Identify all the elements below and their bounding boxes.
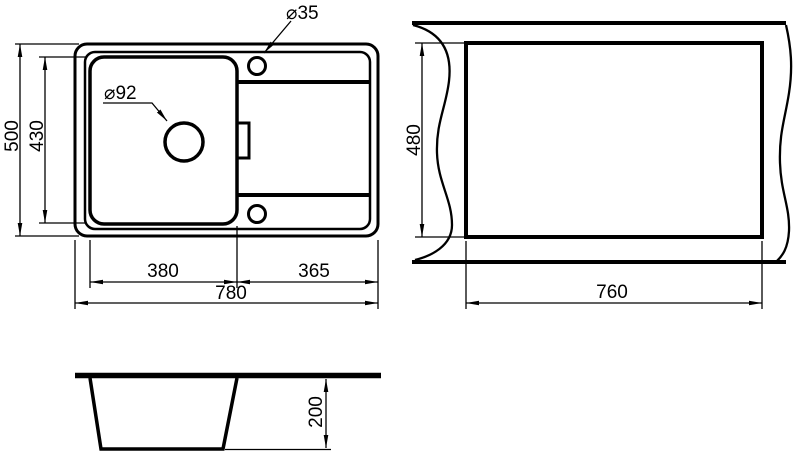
bowl-height-value: 430 — [27, 120, 48, 152]
plan-view: ⌀92 ⌀35 500 430 380 — [2, 3, 378, 309]
sink-outer-outline — [75, 44, 378, 236]
tap-hole-diameter-label: ⌀35 — [286, 3, 319, 24]
bowl-depth-value: 200 — [306, 396, 327, 428]
cutout-view: 480 760 — [404, 23, 791, 309]
dimension-cutout-width: 760 — [466, 241, 762, 309]
drain-leader-line — [103, 103, 167, 121]
overall-height-value: 500 — [2, 120, 23, 152]
drainer-width-value: 365 — [298, 261, 330, 282]
overall-width-value: 780 — [215, 283, 247, 304]
drain-diameter-callout: ⌀92 — [103, 83, 167, 121]
dimension-drainer-width: 365 — [237, 261, 378, 282]
dimension-bowl-height: 430 — [27, 57, 87, 223]
bowl-width-value: 380 — [147, 261, 179, 282]
tap-hole-leader-line — [264, 21, 291, 53]
dimension-overall-width: 780 — [75, 240, 378, 309]
cutout-width-value: 760 — [596, 282, 628, 303]
dimension-cutout-height: 480 — [404, 43, 464, 237]
bowl-profile — [90, 378, 237, 449]
tap-hole-top — [249, 58, 266, 75]
break-line-right — [777, 25, 791, 261]
drain-diameter-label: ⌀92 — [104, 83, 137, 104]
cutout-height-value: 480 — [404, 124, 425, 156]
overflow-notch — [237, 123, 249, 158]
dimension-bowl-depth: 200 — [306, 379, 327, 448]
cutout-outline — [466, 43, 762, 237]
sink-rim-outline — [85, 52, 370, 229]
section-view: 200 — [75, 376, 381, 450]
drain-hole — [165, 123, 203, 161]
technical-drawing-page: ⌀92 ⌀35 500 430 380 — [0, 0, 799, 464]
tap-hole-bottom — [249, 206, 266, 223]
sink-technical-drawing: ⌀92 ⌀35 500 430 380 — [0, 0, 799, 464]
